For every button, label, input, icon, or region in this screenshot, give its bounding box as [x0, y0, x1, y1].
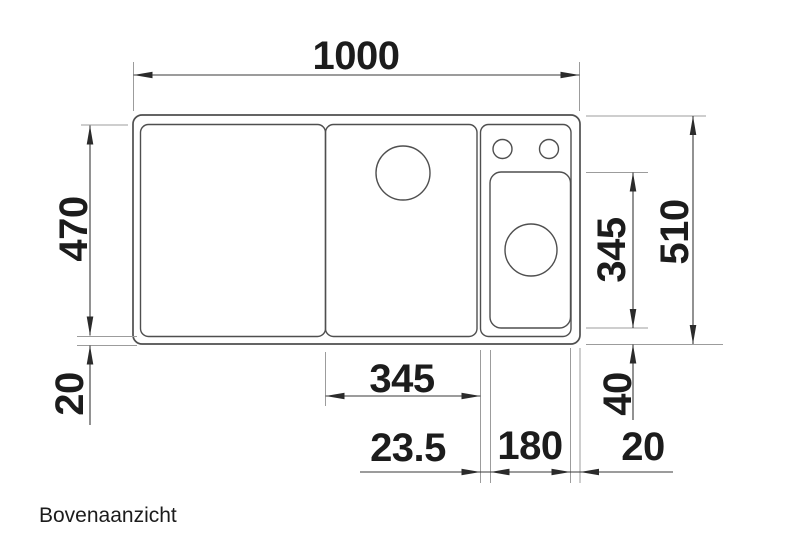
- arrowhead-bowl-offset-up: [630, 345, 637, 364]
- label-bowl-width: 180: [497, 424, 562, 468]
- sink-outer-rim: [133, 115, 580, 344]
- arrowhead-bowl-depth-bottom: [630, 309, 637, 328]
- arrowhead-gap-right: [462, 469, 481, 476]
- bowl: [490, 172, 571, 328]
- sink-top-view-drawing: 1000 470 20 510 345 40 345 23.5 180 20 B…: [0, 0, 800, 557]
- label-rim-bottom-left: 20: [48, 372, 92, 416]
- arrowhead-rim-right: [580, 469, 599, 476]
- dimension-labels: 1000 470 20 510 345 40 345 23.5 180 20: [48, 34, 697, 470]
- arrowhead-width-right: [561, 72, 580, 79]
- label-overall-depth: 510: [653, 199, 697, 264]
- technical-drawing-page: 1000 470 20 510 345 40 345 23.5 180 20 B…: [0, 0, 800, 557]
- arrowhead-bowl-width-right: [552, 469, 571, 476]
- label-rim-right: 20: [621, 425, 665, 469]
- arrowhead-board-width-right: [462, 393, 481, 400]
- arrowhead-rim-left-up: [87, 346, 94, 365]
- arrowhead-inner-depth-bottom: [87, 317, 94, 336]
- sink-body: [133, 115, 580, 344]
- faucet-hole-left: [493, 140, 512, 159]
- label-board-to-bowl-gap: 23.5: [370, 426, 446, 470]
- label-board-width: 345: [369, 357, 434, 401]
- arrowhead-overall-depth-top: [690, 116, 697, 135]
- label-bowl-offset-bottom: 40: [596, 372, 640, 416]
- arrowhead-board-width-left: [326, 393, 345, 400]
- cutting-board-section: [326, 125, 478, 337]
- arrowhead-inner-depth-top: [87, 126, 94, 145]
- label-bowl-depth: 345: [590, 217, 634, 282]
- faucet-hole-right: [540, 140, 559, 159]
- view-caption: Bovenaanzicht: [39, 504, 177, 527]
- drainboard-area: [141, 125, 326, 337]
- label-inner-depth: 470: [52, 196, 96, 261]
- arrowhead-width-left: [134, 72, 153, 79]
- board-hole: [376, 146, 430, 200]
- arrowhead-bowl-depth-top: [630, 173, 637, 192]
- drain-hole: [505, 224, 557, 276]
- arrowhead-bowl-width-left: [491, 469, 510, 476]
- arrowhead-overall-depth-bottom: [690, 325, 697, 344]
- label-overall-width: 1000: [313, 34, 400, 78]
- bowl-section: [481, 125, 572, 337]
